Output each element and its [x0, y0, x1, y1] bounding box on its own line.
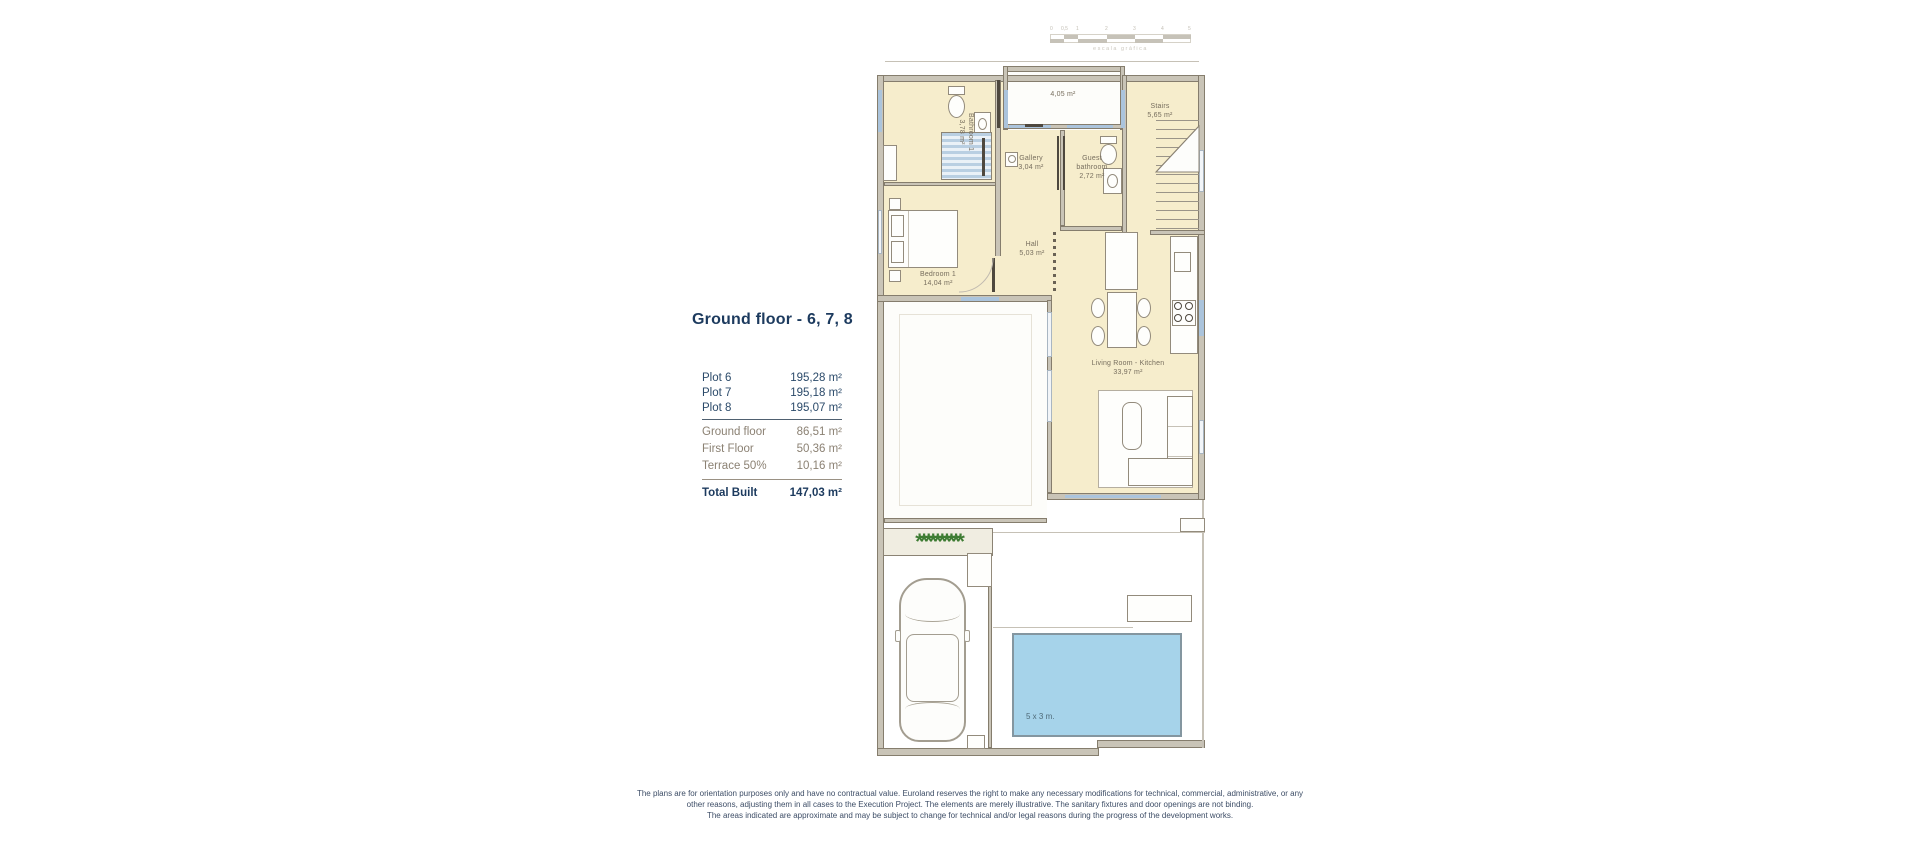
- door-leaf-entry: [1025, 124, 1043, 127]
- room-name: Bedroom 1: [908, 270, 968, 279]
- toilet-tank: [1100, 136, 1117, 144]
- scale-tick: 3: [1133, 26, 1136, 32]
- nightstand: [889, 198, 901, 210]
- car-icon: [895, 578, 970, 744]
- chair: [1137, 326, 1151, 346]
- pool-terrace-line: [993, 627, 1133, 628]
- terrace-edge-line: [993, 532, 1205, 533]
- room-name: Guest bathroom: [1070, 154, 1114, 172]
- wall-guestbath-bottom: [1060, 226, 1122, 231]
- staircase-treads: [1156, 120, 1199, 232]
- row-value: 195,18 m²: [790, 386, 842, 401]
- wall-terrace-top: [1003, 66, 1125, 72]
- window-living-bottom: [1065, 495, 1161, 498]
- scale-tick: 2: [1105, 26, 1108, 32]
- closet: [883, 145, 897, 181]
- row-value: 86,51 m²: [797, 424, 842, 441]
- plot-boundary-right: [1202, 500, 1204, 748]
- scale-tick: 0: [1050, 26, 1053, 32]
- table-row-plot6: Plot 6 195,28 m²: [702, 371, 842, 386]
- room-label-gallery: Gallery 3,04 m²: [1001, 154, 1061, 172]
- door-leaf-guestbath-2: [1063, 136, 1065, 190]
- room-name: Living Room - Kitchen: [1078, 359, 1178, 368]
- window-terrace-left: [1004, 90, 1008, 128]
- toilet-tank: [948, 86, 965, 95]
- shower-screen: [982, 138, 985, 176]
- room-area: 5,03 m²: [1002, 249, 1062, 258]
- table-row-plot7: Plot 7 195,18 m²: [702, 386, 842, 401]
- coffee-table: [1122, 402, 1142, 450]
- chair: [1091, 326, 1105, 346]
- table-row-terrace: Terrace 50% 10,16 m²: [702, 458, 842, 475]
- room-label-terrace: 4,05 m²: [1033, 90, 1093, 99]
- room-label-stairs: Stairs 5,65 m²: [1130, 102, 1190, 120]
- room-name: Gallery: [1001, 154, 1061, 163]
- row-label: Plot 7: [702, 386, 731, 401]
- patio-paving-line: [899, 314, 1032, 506]
- scale-tick: 4: [1161, 26, 1164, 32]
- dining-table: [1107, 292, 1137, 348]
- chair: [1137, 298, 1151, 318]
- room-area: 2,72 m²: [1070, 172, 1114, 181]
- table-row-plot8: Plot 8 195,07 m²: [702, 401, 842, 416]
- scale-segment: [1107, 35, 1135, 39]
- wall-driveway-divider: [988, 585, 992, 748]
- window-living-patio-2: [1047, 370, 1052, 422]
- row-label: First Floor: [702, 441, 754, 458]
- scale-segment: [1135, 39, 1163, 43]
- row-label: Plot 6: [702, 371, 731, 386]
- table-row-first-floor: First Floor 50,36 m²: [702, 441, 842, 458]
- scale-segment: [1078, 39, 1107, 43]
- room-area: 3,04 m²: [1001, 163, 1061, 172]
- wall-plot-bottom: [877, 748, 1099, 756]
- roof-edge-line: [885, 61, 1199, 62]
- wall-plot-bottom-right: [1097, 740, 1205, 748]
- kitchen-island: [1105, 232, 1138, 290]
- disclaimer-line: The areas indicated are approximate and …: [620, 810, 1320, 821]
- room-label-hall: Hall 5,03 m²: [1002, 240, 1062, 258]
- scale-caption: escala gráfica: [1050, 46, 1191, 52]
- scale-bar: 0 0,5 1 2 3 4 5 escala gráfica: [1050, 26, 1195, 56]
- table-row-total: Total Built 147,03 m²: [702, 485, 842, 501]
- room-name: Hall: [1002, 240, 1062, 249]
- sink-basin: [978, 118, 987, 130]
- disclaimer-line: other reasons, adjusting them in all cas…: [620, 799, 1320, 810]
- pillow: [891, 215, 904, 237]
- row-value: 195,28 m²: [790, 371, 842, 386]
- planter: **********: [883, 528, 993, 556]
- porch-step: [1180, 518, 1205, 532]
- scale-tick: 1: [1076, 26, 1079, 32]
- sofa-chaise: [1128, 458, 1193, 486]
- kitchen-sink: [1174, 252, 1191, 272]
- disclaimer-line: The plans are for orientation purposes o…: [620, 788, 1320, 799]
- floor-plan: ********** 5 x 3 m. Bathroom 1 3,78 m² 4…: [875, 60, 1209, 768]
- table-divider: [702, 419, 842, 420]
- window-stairs-right: [1199, 150, 1204, 192]
- total-label: Total Built: [702, 485, 757, 501]
- table-row-ground-floor: Ground floor 86,51 m²: [702, 424, 842, 441]
- disclaimer: The plans are for orientation purposes o…: [620, 788, 1320, 822]
- room-area: 5,65 m²: [1130, 111, 1190, 120]
- garden-step: [967, 553, 992, 587]
- row-value: 50,36 m²: [797, 441, 842, 458]
- window-living-right: [1199, 420, 1204, 454]
- area-table: Plot 6 195,28 m² Plot 7 195,18 m² Plot 8…: [702, 371, 842, 501]
- room-area: 33,97 m²: [1078, 368, 1178, 377]
- wall-bathroom-bedroom: [884, 182, 999, 186]
- pool-size-label: 5 x 3 m.: [1026, 712, 1054, 721]
- room-name: Bathroom 1: [966, 102, 975, 162]
- row-value: 10,16 m²: [797, 458, 842, 475]
- room-label-bathroom1: Bathroom 1 3,78 m²: [957, 102, 975, 162]
- window-terrace-bottom-2: [1067, 125, 1113, 128]
- row-value: 195,07 m²: [790, 401, 842, 416]
- window-kitchen-right: [1199, 300, 1204, 336]
- row-label: Plot 8: [702, 401, 731, 416]
- pillow: [891, 241, 904, 263]
- room-area: 3,78 m²: [957, 102, 966, 162]
- scale-segment: [1163, 35, 1191, 39]
- room-label-bedroom1: Bedroom 1 14,04 m²: [908, 270, 968, 288]
- duvet-line: [908, 211, 909, 267]
- row-label: Terrace 50%: [702, 458, 767, 475]
- window-living-patio-1: [1047, 312, 1052, 357]
- room-label-living-kitchen: Living Room - Kitchen 33,97 m²: [1078, 359, 1178, 377]
- wall-top: [877, 75, 1205, 82]
- scale-segment: [1064, 35, 1078, 39]
- nightstand: [889, 270, 901, 282]
- table-divider: [702, 479, 842, 480]
- wall-patio-bottom: [884, 518, 1047, 523]
- room-area: 4,05 m²: [1033, 90, 1093, 99]
- scale-segment: [1050, 39, 1064, 43]
- room-area: 14,04 m²: [908, 279, 968, 288]
- pool: 5 x 3 m.: [1012, 633, 1182, 737]
- row-label: Ground floor: [702, 424, 766, 441]
- chair: [1091, 298, 1105, 318]
- window-terrace-right: [1121, 90, 1125, 128]
- door-leaf-bathroom: [997, 80, 1000, 128]
- garden-bench: [1127, 595, 1192, 622]
- window-bedroom-bottom: [961, 297, 999, 301]
- scale-tick: 0,5: [1061, 26, 1068, 32]
- scale-tick: 5: [1188, 26, 1191, 32]
- plant-icon: *: [956, 529, 961, 554]
- window-bathroom: [878, 90, 882, 132]
- window-bedroom-side: [878, 210, 882, 254]
- total-value: 147,03 m²: [790, 485, 842, 501]
- bedroom-door-opening: [995, 256, 1001, 292]
- page-title: Ground floor - 6, 7, 8: [692, 311, 853, 329]
- door-leaf-bedroom: [992, 258, 995, 292]
- room-label-guest-bathroom: Guest bathroom 2,72 m²: [1070, 154, 1114, 181]
- room-name: Stairs: [1130, 102, 1190, 111]
